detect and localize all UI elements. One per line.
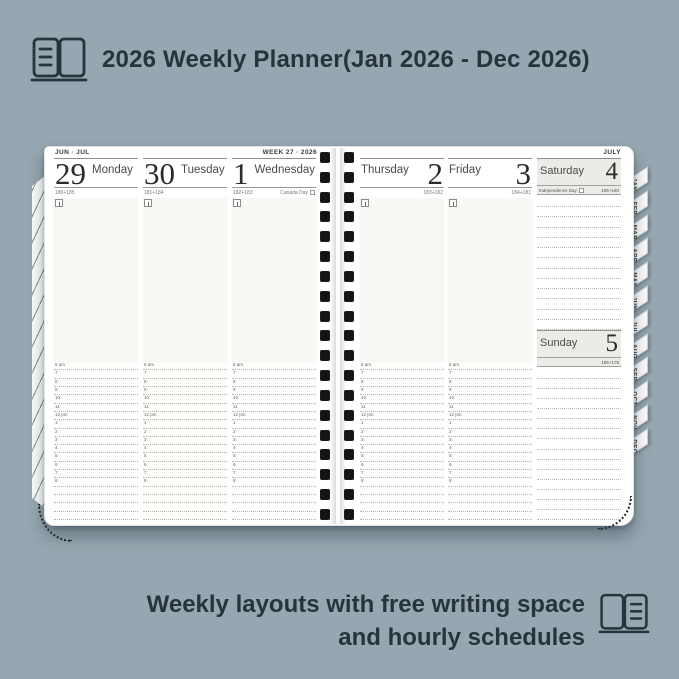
hour-label: 6 am [449, 362, 459, 367]
hour-label: 2 [55, 429, 58, 434]
hour-label: 7 [449, 370, 452, 375]
binding-hole [320, 430, 330, 441]
day-name: Saturday [540, 165, 584, 185]
caption-line-1: Weekly layouts with free writing space [0, 588, 585, 621]
day-header: 30 Tuesday [143, 158, 227, 188]
hour-row [448, 487, 532, 495]
dotted-row [537, 389, 621, 399]
hour-row: 2 [143, 429, 227, 437]
hour-row: 8 [54, 379, 138, 387]
hour-row: 10 [54, 395, 138, 403]
hour-label: 2 [449, 429, 452, 434]
day-count-row: 183+182 [360, 188, 444, 197]
binding-hole [344, 311, 354, 322]
hour-label: 6 [361, 462, 364, 467]
binding-hole [320, 211, 330, 222]
week-number-label: WEEK 27 · 2026 [232, 149, 317, 156]
hour-label: 4 [361, 445, 364, 450]
hour-row: 2 [232, 429, 316, 437]
day-number: 4 [606, 159, 619, 185]
hour-row: 11 [448, 404, 532, 412]
hour-row: 7 [232, 470, 316, 478]
binding-hole [320, 330, 330, 341]
hour-label: 5 [449, 453, 452, 458]
day-number: 3 [516, 160, 532, 187]
hour-row: 8 [143, 379, 227, 387]
open-book-icon [30, 36, 88, 84]
hour-label: 9 [144, 387, 147, 392]
corner-perforation-left [38, 504, 72, 542]
saturday-note-row: Independence Day 185+180 [537, 185, 621, 195]
hour-label: 7 [144, 470, 147, 475]
dotted-row [537, 409, 621, 419]
hour-label: 4 [144, 445, 147, 450]
hour-row: 2 [54, 429, 138, 437]
binding-hole [320, 509, 330, 520]
hour-label: 8 [449, 379, 452, 384]
hour-label: 2 [144, 429, 147, 434]
weekend-column: Saturday 4 Independence Day 185+180 Sund… [537, 158, 621, 520]
dotted-row [537, 320, 621, 330]
hour-label: 7 [233, 470, 236, 475]
binding-hole [320, 410, 330, 421]
hour-row: 7 [54, 470, 138, 478]
hour-label: 6 [233, 462, 236, 467]
hour-row: 11 [360, 404, 444, 412]
hour-row: 8 [360, 478, 444, 486]
hour-label: 6 am [144, 362, 154, 367]
day-count-row: 180+185 [54, 188, 138, 197]
hour-row [143, 512, 227, 520]
hour-row: 6 am [232, 362, 316, 370]
hour-row: 4 [54, 445, 138, 453]
hour-label: 7 [144, 370, 147, 375]
hour-label: 3 [361, 437, 364, 442]
hour-row: 2 [448, 429, 532, 437]
binding-hole [320, 251, 330, 262]
hour-label: 9 [233, 387, 236, 392]
binding-hole [320, 489, 330, 500]
hour-row: 4 [232, 445, 316, 453]
hour-label: 9 [361, 387, 364, 392]
hourly-schedule: 6 am789101112 pm12345678 [448, 362, 532, 520]
hourly-schedule: 6 am789101112 pm12345678 [54, 362, 138, 520]
binding-hole [344, 489, 354, 500]
day-count: 180+185 [55, 190, 75, 196]
hour-row: 7 [448, 370, 532, 378]
note-box-icon [233, 199, 241, 207]
hour-row: 11 [232, 404, 316, 412]
note-box-icon [55, 199, 63, 207]
binding-hole [320, 192, 330, 203]
hour-label: 11 [233, 404, 238, 409]
day-count: 184+181 [511, 190, 531, 196]
hour-row: 5 [232, 453, 316, 461]
hour-label: 8 [233, 379, 236, 384]
hour-label: 10 [55, 395, 60, 400]
hour-row: 8 [448, 478, 532, 486]
hour-label: 4 [449, 445, 452, 450]
hour-label: 11 [361, 404, 366, 409]
dotted-row [537, 238, 621, 248]
holiday-label: Independence Day [539, 188, 584, 193]
sunday-header: Sunday 5 [537, 330, 621, 357]
hour-label: 8 [361, 379, 364, 384]
hour-row [232, 495, 316, 503]
hour-label: 12 pm [233, 412, 246, 417]
binding-hole [320, 271, 330, 282]
hour-row [54, 487, 138, 495]
hour-row: 10 [143, 395, 227, 403]
hour-row: 3 [54, 437, 138, 445]
hour-row: 9 [232, 387, 316, 395]
dotted-row [537, 460, 621, 470]
dotted-row [537, 299, 621, 309]
hour-row: 8 [232, 478, 316, 486]
hour-label: 5 [144, 453, 147, 458]
hour-label: 3 [449, 437, 452, 442]
hour-row: 9 [360, 387, 444, 395]
day-name: Monday [92, 164, 133, 176]
corner-perforation-right [598, 496, 632, 530]
hour-label: 7 [361, 370, 364, 375]
binding-hole [344, 509, 354, 520]
dotted-row [537, 369, 621, 379]
day-number: 5 [606, 331, 619, 357]
dotted-row [537, 279, 621, 289]
hour-row [360, 512, 444, 520]
day-name: Sunday [540, 337, 577, 357]
hour-label: 2 [361, 429, 364, 434]
hour-row [360, 495, 444, 503]
hour-row: 10 [448, 395, 532, 403]
hour-row: 12 pm [360, 412, 444, 420]
hour-label: 7 [55, 370, 58, 375]
hour-label: 6 [55, 462, 58, 467]
hour-row: 7 [143, 370, 227, 378]
hour-row: 6 [448, 462, 532, 470]
dotted-row [537, 217, 621, 227]
hour-label: 6 [144, 462, 147, 467]
day-count-row: 181+184 [143, 188, 227, 197]
hour-label: 12 pm [449, 412, 462, 417]
hour-label: 1 [449, 420, 452, 425]
binding-hole [344, 211, 354, 222]
free-writing-space [448, 198, 532, 362]
dotted-row [537, 258, 621, 268]
hour-row [360, 503, 444, 511]
hour-row [232, 503, 316, 511]
hour-label: 7 [449, 470, 452, 475]
month-range-label: JUN · JUL [55, 149, 90, 156]
hour-label: 8 [55, 379, 58, 384]
hour-row [448, 495, 532, 503]
hourly-schedule: 6 am789101112 pm12345678 [360, 362, 444, 520]
hour-label: 6 [449, 462, 452, 467]
hour-label: 1 [233, 420, 236, 425]
dotted-row [537, 399, 621, 409]
hour-row: 1 [360, 420, 444, 428]
hour-label: 12 pm [361, 412, 374, 417]
binding-hole [344, 291, 354, 302]
binding-hole [344, 152, 354, 163]
hour-label: 3 [55, 437, 58, 442]
hour-label: 5 [361, 453, 364, 458]
binding-hole [320, 291, 330, 302]
hour-label: 3 [233, 437, 236, 442]
hour-label: 9 [449, 387, 452, 392]
hour-label: 4 [233, 445, 236, 450]
holiday-box-icon [579, 188, 584, 193]
binding-hole [344, 231, 354, 242]
hour-row: 1 [448, 420, 532, 428]
hour-label: 8 [144, 478, 147, 483]
hour-label: 8 [361, 478, 364, 483]
hour-row: 12 pm [232, 412, 316, 420]
dotted-row [537, 269, 621, 279]
hour-row: 5 [54, 453, 138, 461]
saturday-header: Saturday 4 [537, 158, 621, 185]
hour-label: 12 pm [55, 412, 68, 417]
hour-row: 6 am [448, 362, 532, 370]
hour-row: 11 [54, 404, 138, 412]
day-column-tuesday: 30 Tuesday 181+184 6 am789101112 pm12345… [143, 158, 227, 520]
hour-row: 6 am [143, 362, 227, 370]
day-name: Friday [449, 164, 481, 176]
dotted-row [537, 310, 621, 320]
day-column-wednesday: 1 Wednesday 182+183 Canada Day 6 am78910… [232, 158, 316, 520]
hour-row: 4 [143, 445, 227, 453]
caption-line-2: and hourly schedules [0, 621, 585, 654]
hour-row: 2 [360, 429, 444, 437]
hour-row: 6 [54, 462, 138, 470]
free-writing-space [232, 198, 316, 362]
day-count-row: 184+181 [448, 188, 532, 197]
hour-row: 12 pm [143, 412, 227, 420]
hour-label: 3 [144, 437, 147, 442]
binding-hole [344, 330, 354, 341]
free-writing-space [143, 198, 227, 362]
hour-row [232, 512, 316, 520]
hour-row [232, 487, 316, 495]
dotted-row [537, 450, 621, 460]
dotted-row [537, 289, 621, 299]
hour-label: 10 [144, 395, 149, 400]
hour-row [143, 495, 227, 503]
gutter-shadow-left [330, 148, 336, 524]
binding-hole [344, 449, 354, 460]
hour-row: 10 [360, 395, 444, 403]
note-box-icon [449, 199, 457, 207]
hour-label: 6 am [55, 362, 65, 367]
hour-row: 8 [448, 379, 532, 387]
spiral-binding-right [344, 152, 354, 520]
saturday-writing-space [537, 197, 621, 330]
hour-label: 1 [55, 420, 58, 425]
binding-hole [344, 430, 354, 441]
dotted-row [537, 228, 621, 238]
day-column-friday: Friday 3 184+181 6 am789101112 pm1234567… [448, 158, 532, 520]
day-number: 30 [144, 160, 175, 187]
day-header: Thursday 2 [360, 158, 444, 188]
hour-row [448, 503, 532, 511]
dotted-row [537, 197, 621, 207]
hour-row: 4 [360, 445, 444, 453]
hour-row: 3 [448, 437, 532, 445]
hour-row: 11 [143, 404, 227, 412]
binding-hole [344, 192, 354, 203]
caption: Weekly layouts with free writing space a… [0, 588, 585, 654]
day-name: Tuesday [181, 164, 225, 176]
spiral-binding-left [320, 152, 330, 520]
hour-label: 8 [233, 478, 236, 483]
hour-label: 11 [144, 404, 149, 409]
note-box-icon [361, 199, 369, 207]
hour-label: 4 [55, 445, 58, 450]
binding-hole [320, 311, 330, 322]
holiday-box-icon [310, 190, 315, 195]
holiday-label: Canada Day [280, 190, 315, 196]
hour-label: 6 am [233, 362, 243, 367]
open-book-icon [598, 592, 650, 641]
binding-hole [344, 271, 354, 282]
hour-row: 7 [448, 470, 532, 478]
day-column-thursday: Thursday 2 183+182 6 am789101112 pm12345… [360, 158, 444, 520]
day-name: Wednesday [255, 164, 316, 176]
hour-label: 8 [144, 379, 147, 384]
day-header: Friday 3 [448, 158, 532, 188]
hour-row: 3 [143, 437, 227, 445]
day-count-row: 182+183 Canada Day [232, 188, 316, 197]
hour-row: 9 [448, 387, 532, 395]
dotted-row [537, 419, 621, 429]
dotted-row [537, 429, 621, 439]
page-title: 2026 Weekly Planner(Jan 2026 - Dec 2026) [102, 46, 590, 74]
hour-row: 5 [143, 453, 227, 461]
hour-row: 5 [360, 453, 444, 461]
hour-label: 12 pm [144, 412, 157, 417]
hour-row: 12 pm [54, 412, 138, 420]
dotted-row [537, 248, 621, 258]
hour-label: 2 [233, 429, 236, 434]
hour-row: 10 [232, 395, 316, 403]
hour-label: 10 [233, 395, 238, 400]
binding-hole [344, 172, 354, 183]
day-header: 29 Monday [54, 158, 138, 188]
free-writing-space [54, 198, 138, 362]
hour-row: 8 [143, 478, 227, 486]
hour-row: 8 [360, 379, 444, 387]
hour-label: 10 [361, 395, 366, 400]
dotted-row [537, 480, 621, 490]
hour-row: 7 [54, 370, 138, 378]
day-header: 1 Wednesday [232, 158, 316, 188]
hour-row: 3 [360, 437, 444, 445]
day-count: 183+182 [423, 190, 443, 196]
binding-hole [320, 370, 330, 381]
hour-row: 9 [54, 387, 138, 395]
hour-label: 8 [55, 478, 58, 483]
day-count: 186+179 [601, 360, 619, 365]
hour-row: 6 am [360, 362, 444, 370]
dotted-row [537, 379, 621, 389]
day-number: 2 [428, 160, 444, 187]
hour-label: 5 [55, 453, 58, 458]
free-writing-space [360, 198, 444, 362]
hour-label: 7 [361, 470, 364, 475]
binding-hole [344, 370, 354, 381]
dotted-row [537, 470, 621, 480]
note-box-icon [144, 199, 152, 207]
hour-row: 7 [143, 470, 227, 478]
hour-label: 11 [55, 404, 60, 409]
binding-hole [320, 172, 330, 183]
hour-row [448, 512, 532, 520]
dotted-row [537, 207, 621, 217]
hour-row: 4 [448, 445, 532, 453]
binding-hole [344, 350, 354, 361]
hour-row: 6 am [54, 362, 138, 370]
hour-row: 7 [360, 370, 444, 378]
hour-row: 7 [360, 470, 444, 478]
day-count: 182+183 [233, 190, 253, 196]
day-name: Thursday [361, 164, 409, 176]
binding-hole [344, 410, 354, 421]
hour-label: 8 [449, 478, 452, 483]
binding-hole [344, 390, 354, 401]
binding-hole [320, 350, 330, 361]
hour-row: 1 [143, 420, 227, 428]
day-number: 29 [55, 160, 86, 187]
binding-hole [320, 231, 330, 242]
binding-hole [320, 390, 330, 401]
hour-row: 6 [360, 462, 444, 470]
dotted-row [537, 439, 621, 449]
hour-label: 7 [55, 470, 58, 475]
hour-row: 3 [232, 437, 316, 445]
hour-label: 9 [55, 387, 58, 392]
hour-row: 12 pm [448, 412, 532, 420]
hour-row: 6 [232, 462, 316, 470]
hour-row [143, 487, 227, 495]
hour-row: 7 [232, 370, 316, 378]
headline: 2026 Weekly Planner(Jan 2026 - Dec 2026) [30, 36, 590, 84]
hour-label: 5 [233, 453, 236, 458]
hour-row: 8 [54, 478, 138, 486]
binding-hole [344, 469, 354, 480]
binding-hole [320, 449, 330, 460]
hourly-schedule: 6 am789101112 pm12345678 [143, 362, 227, 520]
hour-row: 5 [448, 453, 532, 461]
hourly-schedule: 6 am789101112 pm12345678 [232, 362, 316, 520]
day-count: 181+184 [144, 190, 164, 196]
hour-row: 1 [232, 420, 316, 428]
hour-row [360, 487, 444, 495]
hour-label: 11 [449, 404, 454, 409]
sunday-note-row: 186+179 [537, 357, 621, 367]
day-number: 1 [233, 160, 249, 187]
binding-hole [320, 152, 330, 163]
hour-label: 1 [144, 420, 147, 425]
hour-row: 1 [54, 420, 138, 428]
day-count: 185+180 [601, 188, 619, 193]
hour-label: 6 am [361, 362, 371, 367]
hour-row: 6 [143, 462, 227, 470]
month-label: JULY [537, 149, 621, 156]
hour-row [54, 495, 138, 503]
hour-label: 10 [449, 395, 454, 400]
binding-hole [320, 469, 330, 480]
